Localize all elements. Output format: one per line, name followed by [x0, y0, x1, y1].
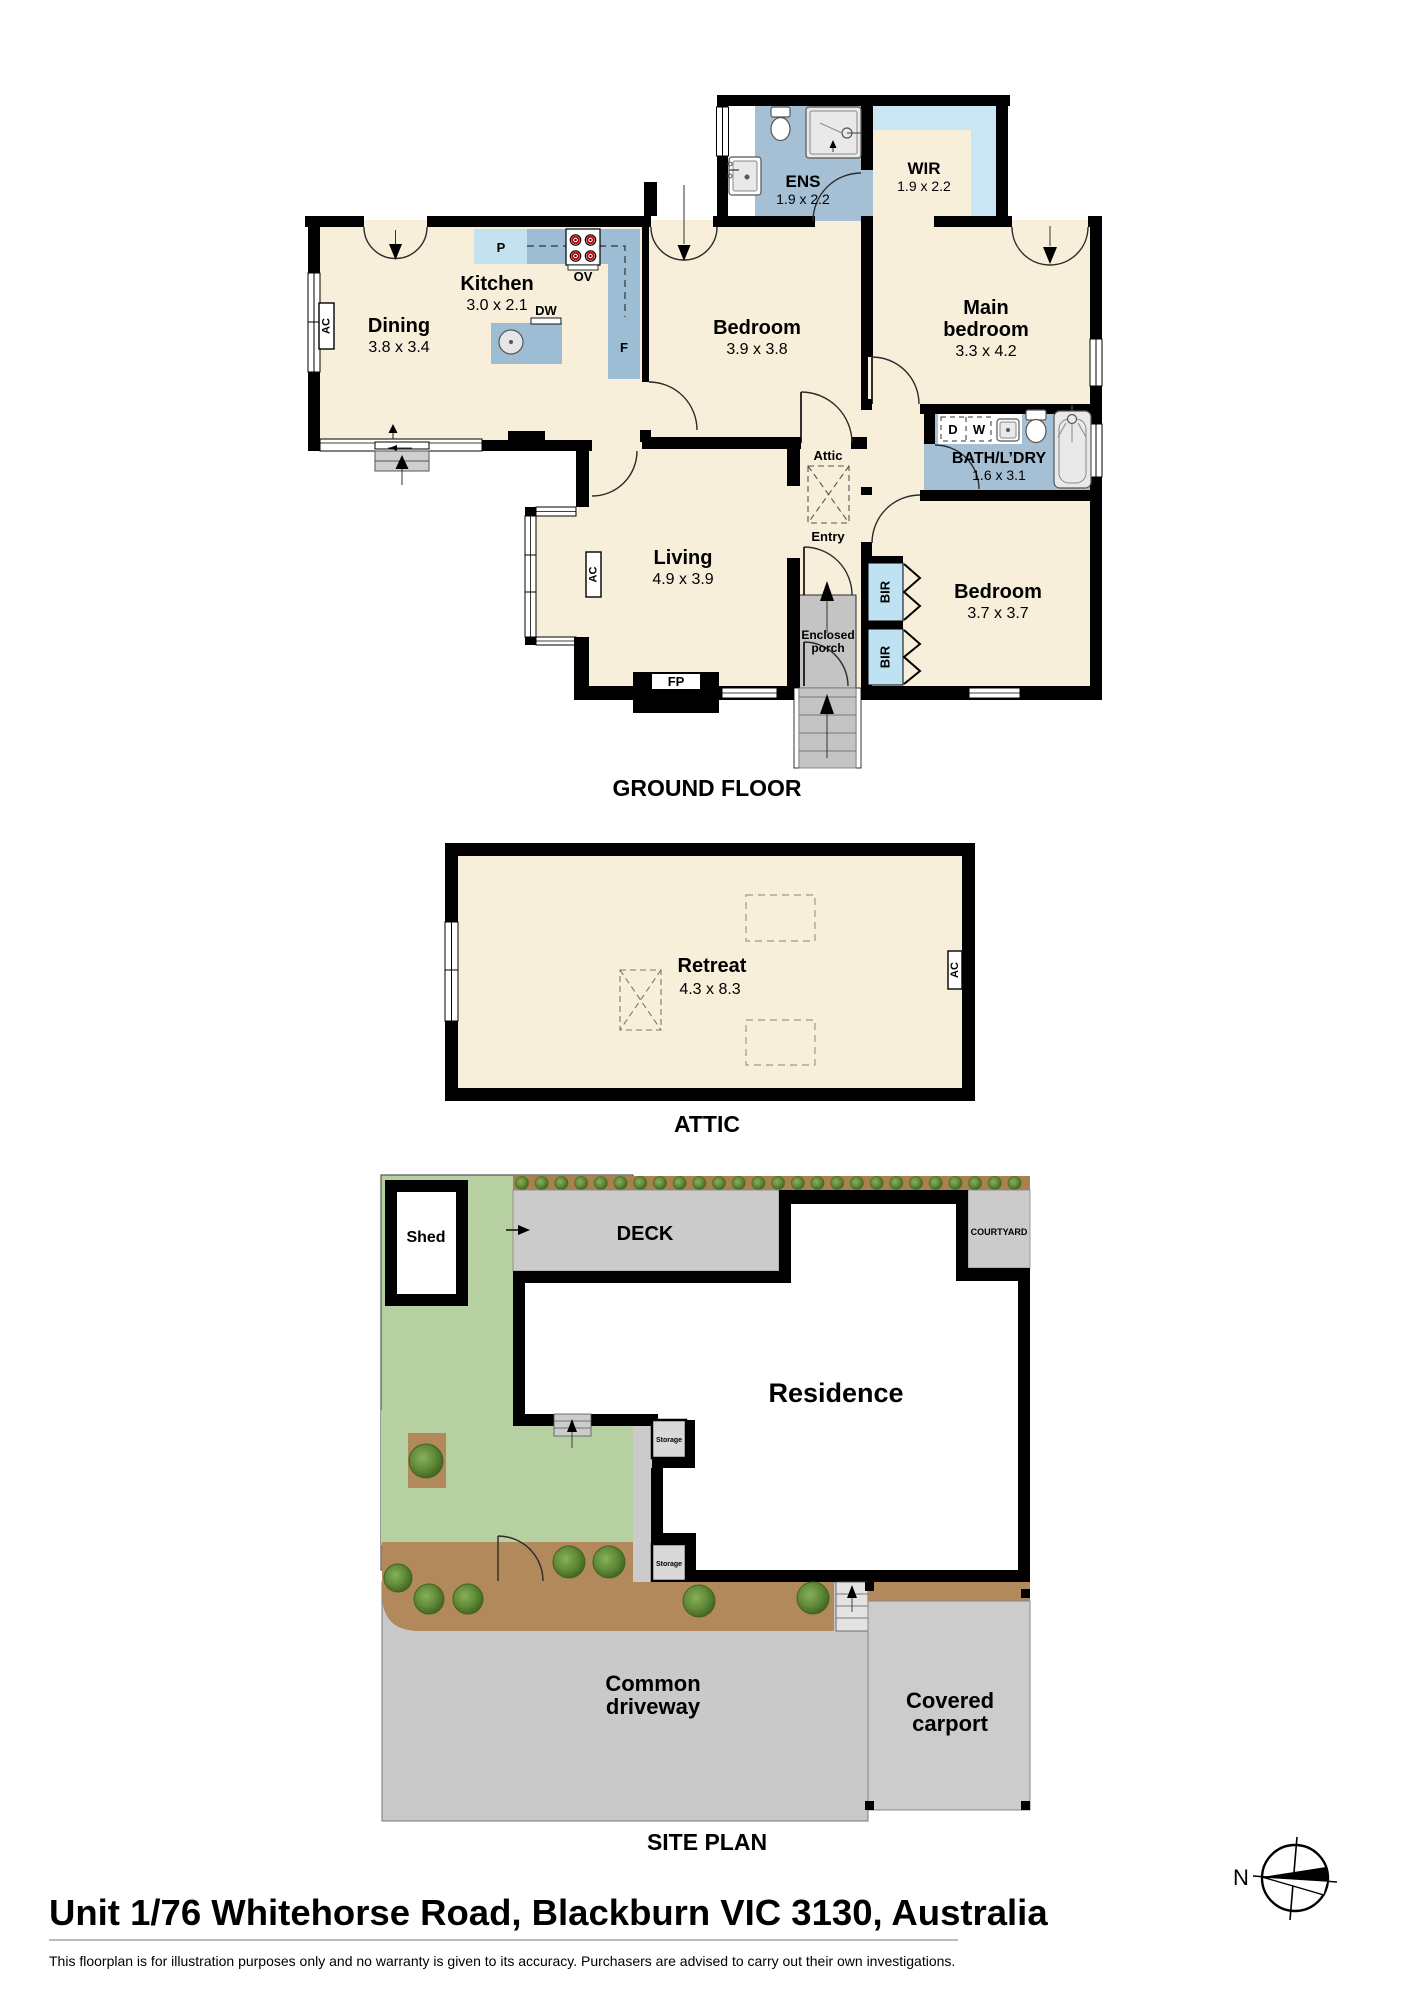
- svg-text:Residence: Residence: [768, 1378, 903, 1408]
- svg-text:Enclosed: Enclosed: [801, 628, 854, 642]
- svg-text:Dining: Dining: [368, 315, 430, 337]
- svg-text:Main: Main: [963, 297, 1009, 319]
- svg-text:Bedroom: Bedroom: [713, 317, 801, 339]
- svg-text:Attic: Attic: [814, 448, 843, 463]
- svg-text:This floorplan is for illustra: This floorplan is for illustration purpo…: [49, 1953, 955, 1969]
- svg-text:AC: AC: [587, 567, 599, 583]
- svg-text:FP: FP: [668, 674, 685, 689]
- svg-text:3.3 x 4.2: 3.3 x 4.2: [955, 343, 1016, 360]
- svg-text:Covered: Covered: [906, 1688, 994, 1713]
- svg-text:D: D: [948, 422, 957, 437]
- svg-text:3.9 x 3.8: 3.9 x 3.8: [726, 341, 787, 358]
- svg-text:porch: porch: [811, 641, 844, 655]
- svg-text:Unit 1/76 Whitehorse Road, Bla: Unit 1/76 Whitehorse Road, Blackburn VIC…: [49, 1892, 1048, 1933]
- svg-text:3.0 x 2.1: 3.0 x 2.1: [466, 297, 527, 314]
- svg-text:1.9 x 2.2: 1.9 x 2.2: [897, 178, 951, 194]
- svg-text:Storage: Storage: [656, 1437, 682, 1444]
- svg-text:DW: DW: [535, 303, 557, 318]
- svg-text:F: F: [620, 340, 628, 355]
- svg-text:Retreat: Retreat: [678, 955, 747, 977]
- svg-text:bedroom: bedroom: [943, 319, 1029, 341]
- svg-text:4.3 x 8.3: 4.3 x 8.3: [679, 981, 740, 998]
- svg-text:P: P: [497, 240, 506, 255]
- svg-text:BIR: BIR: [877, 580, 892, 603]
- svg-text:carport: carport: [912, 1711, 988, 1736]
- svg-text:W: W: [973, 422, 986, 437]
- svg-text:ENS: ENS: [786, 172, 821, 191]
- svg-text:4.9 x 3.9: 4.9 x 3.9: [652, 571, 713, 588]
- svg-text:Living: Living: [654, 547, 713, 569]
- svg-text:BATH/L’DRY: BATH/L’DRY: [952, 450, 1047, 467]
- svg-text:Entry: Entry: [811, 529, 845, 544]
- svg-text:SITE PLAN: SITE PLAN: [647, 1829, 767, 1855]
- svg-text:driveway: driveway: [606, 1694, 701, 1719]
- svg-text:Common: Common: [605, 1671, 700, 1696]
- svg-text:3.7 x 3.7: 3.7 x 3.7: [967, 605, 1028, 622]
- svg-text:WIR: WIR: [907, 159, 940, 178]
- svg-text:ATTIC: ATTIC: [674, 1111, 740, 1137]
- svg-text:N: N: [1233, 1865, 1249, 1890]
- svg-text:DECK: DECK: [617, 1223, 674, 1245]
- svg-text:AC: AC: [949, 962, 961, 978]
- svg-text:Kitchen: Kitchen: [460, 273, 533, 295]
- svg-text:COURTYARD: COURTYARD: [971, 1227, 1028, 1237]
- svg-text:1.6 x 3.1: 1.6 x 3.1: [972, 467, 1026, 483]
- svg-text:AC: AC: [320, 318, 332, 334]
- svg-text:Bedroom: Bedroom: [954, 581, 1042, 603]
- svg-text:BIR: BIR: [877, 645, 892, 668]
- svg-text:Shed: Shed: [406, 1229, 445, 1246]
- svg-text:3.8 x 3.4: 3.8 x 3.4: [368, 339, 429, 356]
- svg-text:GROUND FLOOR: GROUND FLOOR: [612, 775, 801, 801]
- svg-text:1.9 x 2.2: 1.9 x 2.2: [776, 191, 830, 207]
- svg-text:Storage: Storage: [656, 1561, 682, 1568]
- svg-text:OV: OV: [574, 269, 593, 284]
